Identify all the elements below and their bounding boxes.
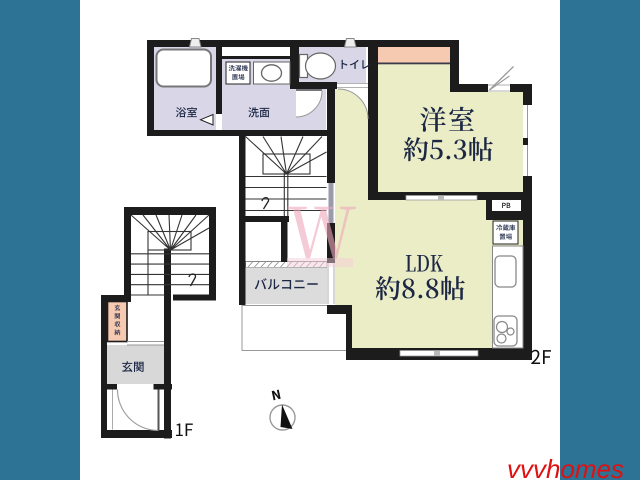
svg-text:vvvhomes: vvvhomes bbox=[507, 454, 624, 480]
